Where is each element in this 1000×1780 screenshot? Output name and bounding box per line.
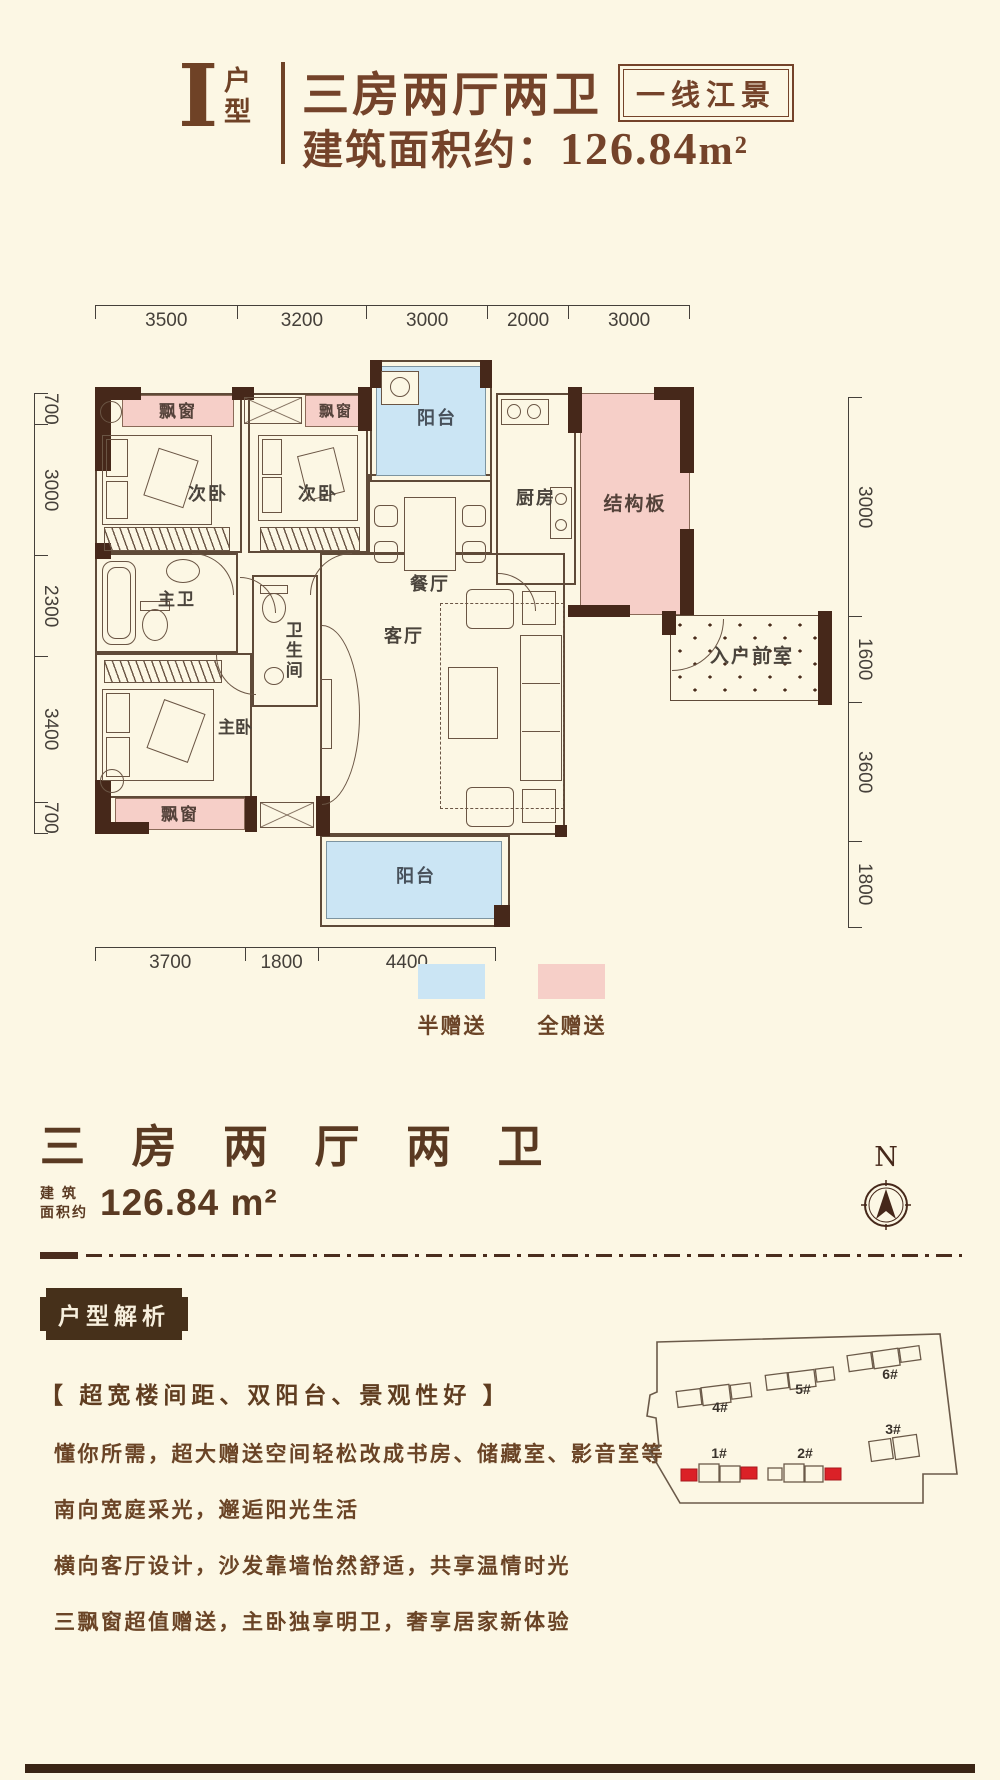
summary-area-row: 建 筑 面积约 126.84 m²	[40, 1182, 278, 1224]
pillow-icon	[262, 477, 282, 513]
building-label-4: 4#	[712, 1399, 728, 1415]
room-label-structural-slab: 结构板	[586, 495, 684, 516]
dim-segment: 3500	[95, 305, 237, 319]
bathtub-inner-icon	[107, 567, 131, 639]
dim-segment: 3000	[568, 305, 690, 319]
dim-segment: 700	[34, 802, 48, 834]
dim-segment: 700	[34, 393, 48, 424]
highlight-unit	[741, 1467, 757, 1479]
building-label-1: 1#	[711, 1445, 727, 1461]
divider-dashline	[86, 1254, 962, 1257]
room-label-bedroom: 次卧	[178, 485, 238, 505]
washer-drum-icon	[390, 377, 410, 397]
tv-icon	[320, 679, 332, 749]
river-view-badge: 一线江景	[618, 64, 794, 122]
chair-icon	[462, 505, 486, 527]
room-label-bathroom: 卫生间	[282, 611, 301, 691]
sofa-cushion-line	[522, 731, 560, 732]
washbasin-icon	[264, 667, 284, 685]
dimension-left: 700 3000 2300 3400 700	[34, 393, 48, 834]
building-label-5: 5#	[795, 1381, 811, 1397]
legend-half-gift-label: 半赠送	[406, 1010, 498, 1040]
floor-plan: 3500 3200 3000 2000 3000 700 3000 2300 3…	[20, 275, 970, 985]
pillow-icon	[106, 439, 128, 477]
header-title-row: 三房两厅两卫一线江景	[302, 56, 794, 125]
pillow-icon	[106, 693, 130, 733]
sink-bowl-icon	[507, 404, 521, 419]
building-cluster-3	[869, 1434, 920, 1461]
building-label-2: 2#	[797, 1445, 813, 1461]
summary-block: 三 房 两 厅 两 卫 建 筑 面积约 126.84 m²	[40, 1096, 740, 1236]
room-label-balcony: 阳台	[384, 867, 448, 887]
wall-segment	[568, 605, 630, 617]
wardrobe-icon	[260, 527, 360, 551]
chair-icon	[374, 505, 398, 527]
section-divider	[40, 1252, 962, 1260]
window-x-top	[244, 397, 302, 424]
wall-segment	[480, 360, 492, 388]
compass: N	[856, 1142, 916, 1242]
area-value: 126.84	[560, 123, 699, 174]
legend-full-gift-swatch	[538, 964, 605, 999]
building-label-3: 3#	[885, 1421, 901, 1437]
analysis-badge: 户型解析	[40, 1288, 188, 1340]
dim-segment: 3600	[848, 702, 862, 841]
sofa-icon	[520, 635, 562, 781]
burner-icon	[555, 519, 567, 531]
wall-segment	[95, 822, 149, 834]
sink-bowl-icon	[527, 404, 541, 419]
header-divider-bar	[281, 62, 285, 164]
divider-cap	[40, 1252, 78, 1259]
room-label-dining: 餐厅	[398, 575, 462, 595]
wardrobe-icon	[104, 660, 222, 683]
side-table-icon	[522, 789, 556, 823]
armchair-icon	[466, 787, 514, 827]
toilet-icon	[142, 609, 168, 641]
dim-segment: 2300	[34, 555, 48, 656]
wall-segment	[818, 611, 832, 705]
room-label-bedroom: 次卧	[288, 485, 348, 505]
footer-bar	[25, 1764, 975, 1773]
wall-segment	[680, 529, 694, 615]
sofa-cushion-line	[522, 683, 560, 684]
area-prefix: 建筑面积约：	[302, 127, 560, 173]
summary-area-value: 126.84 m²	[100, 1182, 278, 1224]
dim-segment: 3000	[848, 397, 862, 616]
dim-segment: 1800	[848, 841, 862, 928]
room-label-kitchen: 厨房	[502, 489, 570, 509]
flyer-page: I 户型 三房两厅两卫一线江景 建筑面积约：126.84m² 3500 3200…	[0, 0, 1000, 1780]
compass-rose-icon	[856, 1173, 916, 1237]
dimension-right: 3000 1600 3600 1800	[848, 397, 862, 928]
room-label-bay-window: 飘窗	[142, 806, 218, 825]
room-label-balcony: 阳台	[402, 409, 472, 429]
unit-type-label: 户型	[224, 66, 256, 128]
room-label-master-bedroom: 主卧	[216, 719, 254, 738]
analysis-line: 三飘窗超值赠送，主卧独享明卫，奢享居家新体验	[54, 1606, 960, 1636]
wall-segment	[95, 387, 141, 400]
door-arc	[310, 553, 352, 595]
window-x-bottom	[260, 802, 314, 828]
summary-area-label: 建 筑 面积约	[40, 1184, 88, 1222]
pillow-icon	[106, 481, 128, 519]
gift-legend: 半赠送 全赠送	[0, 958, 1000, 1038]
washbasin-icon	[166, 559, 200, 583]
legend-half-gift-swatch	[418, 964, 485, 999]
header: I 户型 三房两厅两卫一线江景 建筑面积约：126.84m²	[178, 50, 938, 175]
pillow-icon	[262, 439, 282, 475]
room-label-living: 客厅	[372, 627, 436, 647]
site-plan: 4# 5# 6# 3# 1#	[560, 1300, 1000, 1520]
fan-coil-icon	[100, 401, 122, 423]
room-label-master-bath: 主卫	[148, 591, 206, 610]
dim-segment: 2000	[487, 305, 568, 319]
wardrobe-icon	[104, 527, 230, 551]
room-label-bay-window: 飘窗	[140, 403, 216, 422]
legend-full-gift-label: 全赠送	[526, 1010, 618, 1040]
armchair-icon	[466, 589, 514, 629]
building-cluster-2	[768, 1464, 841, 1482]
building-cluster-1	[681, 1464, 757, 1482]
chair-icon	[374, 541, 398, 563]
dim-segment: 3200	[237, 305, 367, 319]
dim-segment: 3000	[366, 305, 487, 319]
highlight-unit	[825, 1468, 841, 1480]
summary-title: 三 房 两 厅 两 卫	[40, 1110, 560, 1175]
dimension-top: 3500 3200 3000 2000 3000	[95, 305, 690, 319]
wall-segment	[568, 387, 582, 433]
room-label-bay-window: 飘窗	[306, 404, 366, 421]
analysis-line: 横向客厅设计，沙发靠墙怡然舒适，共享温情时光	[54, 1550, 960, 1580]
wall-segment	[555, 825, 567, 837]
dim-segment: 1600	[848, 616, 862, 702]
room-label-entry-foyer: 入户前室	[696, 647, 808, 668]
page-title: 三房两厅两卫	[302, 70, 602, 122]
compass-n-label: N	[856, 1142, 916, 1173]
fan-coil-icon	[100, 769, 124, 793]
dim-segment: 3000	[34, 424, 48, 555]
coffee-table-icon	[448, 667, 498, 739]
wall-segment	[494, 905, 510, 927]
toilet-tank-icon	[260, 585, 288, 594]
building-label-6: 6#	[882, 1366, 898, 1382]
unit-type-letter: I	[178, 54, 218, 140]
header-area-line: 建筑面积约：126.84m²	[302, 116, 749, 176]
dim-segment: 3400	[34, 656, 48, 802]
highlight-unit	[681, 1469, 697, 1481]
wall-segment	[245, 796, 257, 832]
area-unit: m²	[699, 127, 749, 173]
chair-icon	[462, 541, 486, 563]
side-table-icon	[522, 591, 556, 625]
wall-segment	[680, 387, 694, 473]
dining-table-icon	[404, 497, 456, 571]
